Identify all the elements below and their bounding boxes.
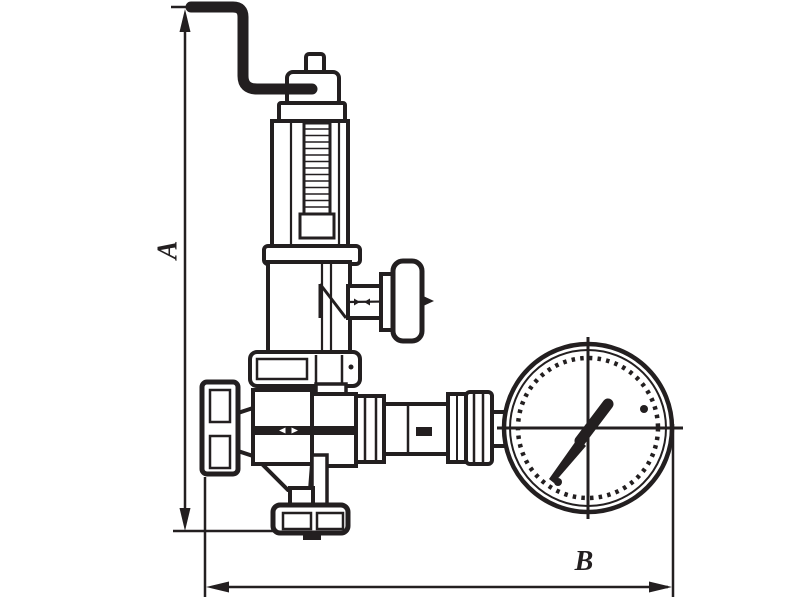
outlet-hex-nut	[356, 396, 384, 462]
hex-flange-band	[250, 352, 360, 386]
gauge-connection	[356, 392, 508, 464]
spring-bonnet	[272, 121, 348, 249]
side-knob	[393, 261, 422, 341]
gauge-dial-screw-upper	[640, 405, 648, 413]
drawing-canvas: A B	[0, 0, 800, 598]
dimension-B-arrow-right	[649, 582, 672, 593]
side-outlet	[348, 261, 434, 341]
lower-housing	[268, 262, 350, 352]
pressure-gauge	[497, 337, 683, 519]
hex-flange	[250, 352, 360, 386]
gauge-dial-screw-lower	[554, 478, 562, 486]
valve-drawing	[191, 7, 683, 540]
dimension-B-label: B	[574, 546, 594, 577]
tube-band-mark	[416, 427, 432, 436]
bottom-drain-tip	[303, 533, 321, 540]
inlet-union-nut	[202, 382, 238, 474]
side-spindle-tip	[421, 295, 434, 307]
valve-technical-drawing: A B	[0, 0, 800, 598]
dimension-A-arrow-up	[180, 9, 191, 32]
hex-flange-pin	[349, 365, 354, 370]
bonnet-cap	[287, 54, 339, 106]
gauge-gland-nut	[466, 392, 492, 464]
spindle-nut	[300, 214, 334, 238]
dimension-A-label: A	[153, 241, 184, 262]
threaded-spindle	[304, 123, 330, 219]
dimension-A-arrow-down	[180, 508, 191, 531]
body-facet-band	[251, 426, 355, 435]
valve-body	[202, 382, 356, 474]
dimension-B-arrow-left	[206, 582, 229, 593]
